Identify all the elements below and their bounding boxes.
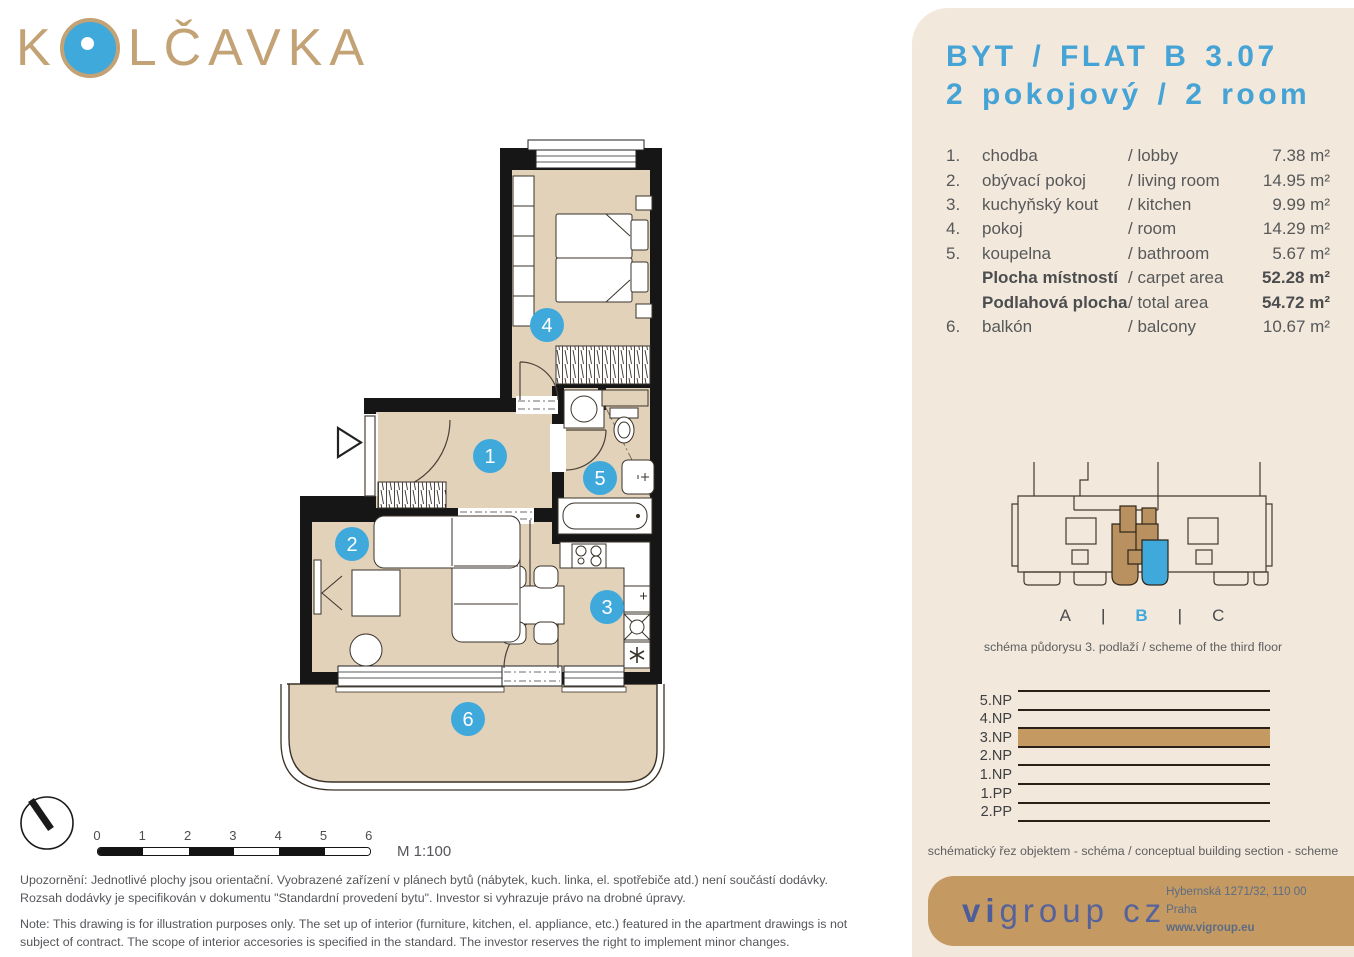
disclaimer-en-label: Note: <box>20 917 50 931</box>
room-badge-4: 4 <box>541 315 552 337</box>
scale-tick-6: 6 <box>359 828 379 843</box>
room-table-row: 4. pokoj / room 14.29 m² <box>946 217 1330 241</box>
scale-bar: 0123456 M 1:100 <box>90 828 470 864</box>
logo-o-icon <box>60 18 120 78</box>
building-scheme <box>1008 454 1276 604</box>
scale-tick-0: 0 <box>87 828 107 843</box>
floor-line <box>1018 820 1270 822</box>
room-table-row: 5. koupelna / bathroom 5.67 m² <box>946 242 1330 266</box>
scale-segments <box>97 847 371 856</box>
developer-footer: vigroup cz Hybernská 1271/32, 110 00 Pra… <box>928 876 1354 946</box>
scale-tick-3: 3 <box>223 828 243 843</box>
floor-label-1pp: 1.PP <box>952 786 1012 802</box>
scale-tick-1: 1 <box>132 828 152 843</box>
vigroup-logo: vigroup cz <box>962 892 1166 930</box>
logo-text-pre: K <box>16 22 58 74</box>
flat-title-line2: 2 pokojový / 2 room <box>946 76 1310 114</box>
floor-line <box>1018 764 1270 766</box>
section-caption: schématický řez objektem - schéma / conc… <box>922 844 1344 858</box>
kolcavka-logo: K LČAVKA <box>16 18 371 78</box>
floor-line <box>1018 727 1270 729</box>
disclaimer-cz-line1: Jednotlivé plochy jsou orientační. Vyobr… <box>88 873 828 887</box>
logo-text-post: LČAVKA <box>128 22 371 74</box>
vigroup-logo-vi: vi <box>962 892 1000 929</box>
floor-label-5np: 5.NP <box>952 693 1012 709</box>
floor-line <box>1018 690 1270 692</box>
disclaimer: Upozornění: Jednotlivé plochy jsou orien… <box>20 872 910 957</box>
section-labels: A | B | C <box>1008 606 1276 626</box>
section-label-c: C <box>1212 606 1224 626</box>
floor-label-2np: 2.NP <box>952 748 1012 764</box>
scale-label: M 1:100 <box>397 843 451 860</box>
floor-label-2pp: 2.PP <box>952 804 1012 820</box>
entrance-arrow-icon <box>338 428 361 457</box>
website-link[interactable]: www.vigroup.eu <box>1166 920 1328 938</box>
disclaimer-cz-line2: Rozsah dodávky je specifikován v dokumen… <box>20 890 910 908</box>
section-label-a: A <box>1060 606 1071 626</box>
room-badge-6: 6 <box>462 709 473 731</box>
room-badge-5: 5 <box>594 468 605 490</box>
disclaimer-en-line2: subject of contract. The scope of interi… <box>20 934 910 952</box>
flat-title-line1: BYT / FLAT B 3.07 <box>946 38 1310 76</box>
scale-tick-2: 2 <box>178 828 198 843</box>
room-table-row: 2. obývací pokoj / living room 14.95 m² <box>946 168 1330 192</box>
info-sidebar: BYT / FLAT B 3.07 2 pokojový / 2 room 1.… <box>912 8 1354 957</box>
section-divider: | <box>1178 606 1182 626</box>
section-diagram: 5.NP4.NP3.NP2.NP1.NP1.PP2.PP <box>948 690 1278 842</box>
this-flat-highlight <box>1142 540 1168 585</box>
room-table-row: 6. balkón / balcony 10.67 m² <box>946 315 1330 339</box>
floor-line <box>1018 783 1270 785</box>
room-badge-1: 1 <box>484 446 495 468</box>
section-divider: | <box>1101 606 1105 626</box>
floor-line <box>1018 802 1270 804</box>
disclaimer-en-line1: This drawing is for illustration purpose… <box>50 917 848 931</box>
room-badge-2: 2 <box>346 534 357 556</box>
room-table-row: 3. kuchyňský kout / kitchen 9.99 m² <box>946 193 1330 217</box>
scale-tick-5: 5 <box>314 828 334 843</box>
north-compass-icon <box>14 792 80 858</box>
floor-label-3np: 3.NP <box>952 730 1012 746</box>
rooms-table: 1. chodba / lobby 7.38 m² 2. obývací pok… <box>946 144 1330 339</box>
lobby-cabinet <box>378 482 446 508</box>
section-label-b: B <box>1135 606 1147 626</box>
highlighted-floor-bar <box>1018 729 1270 746</box>
address-line: Hybernská 1271/32, 110 00 Praha <box>1166 884 1328 920</box>
vigroup-logo-rest: group cz <box>1000 892 1167 929</box>
brochure-page: K LČAVKA <box>0 0 1354 957</box>
floor-label-4np: 4.NP <box>952 711 1012 727</box>
room-table-row: Plocha místností / carpet area 52.28 m² <box>946 266 1330 290</box>
floor-line <box>1018 746 1270 748</box>
flat-title: BYT / FLAT B 3.07 2 pokojový / 2 room <box>946 38 1310 114</box>
room-table-row: Podlahová plocha / total area 54.72 m² <box>946 290 1330 314</box>
room-badge-3: 3 <box>601 597 612 619</box>
floor-label-1np: 1.NP <box>952 767 1012 783</box>
scheme-caption: schéma půdorysu 3. podlaží / scheme of t… <box>922 640 1344 654</box>
section-b-flats <box>1112 506 1168 585</box>
floor-plan: 1 2 3 4 5 6 <box>270 130 690 798</box>
disclaimer-cz-label: Upozornění: <box>20 873 88 887</box>
floor-line <box>1018 709 1270 711</box>
balcony <box>281 684 664 790</box>
scale-tick-4: 4 <box>268 828 288 843</box>
developer-address: Hybernská 1271/32, 110 00 Praha www.vigr… <box>1166 884 1328 937</box>
room-table-row: 1. chodba / lobby 7.38 m² <box>946 144 1330 168</box>
